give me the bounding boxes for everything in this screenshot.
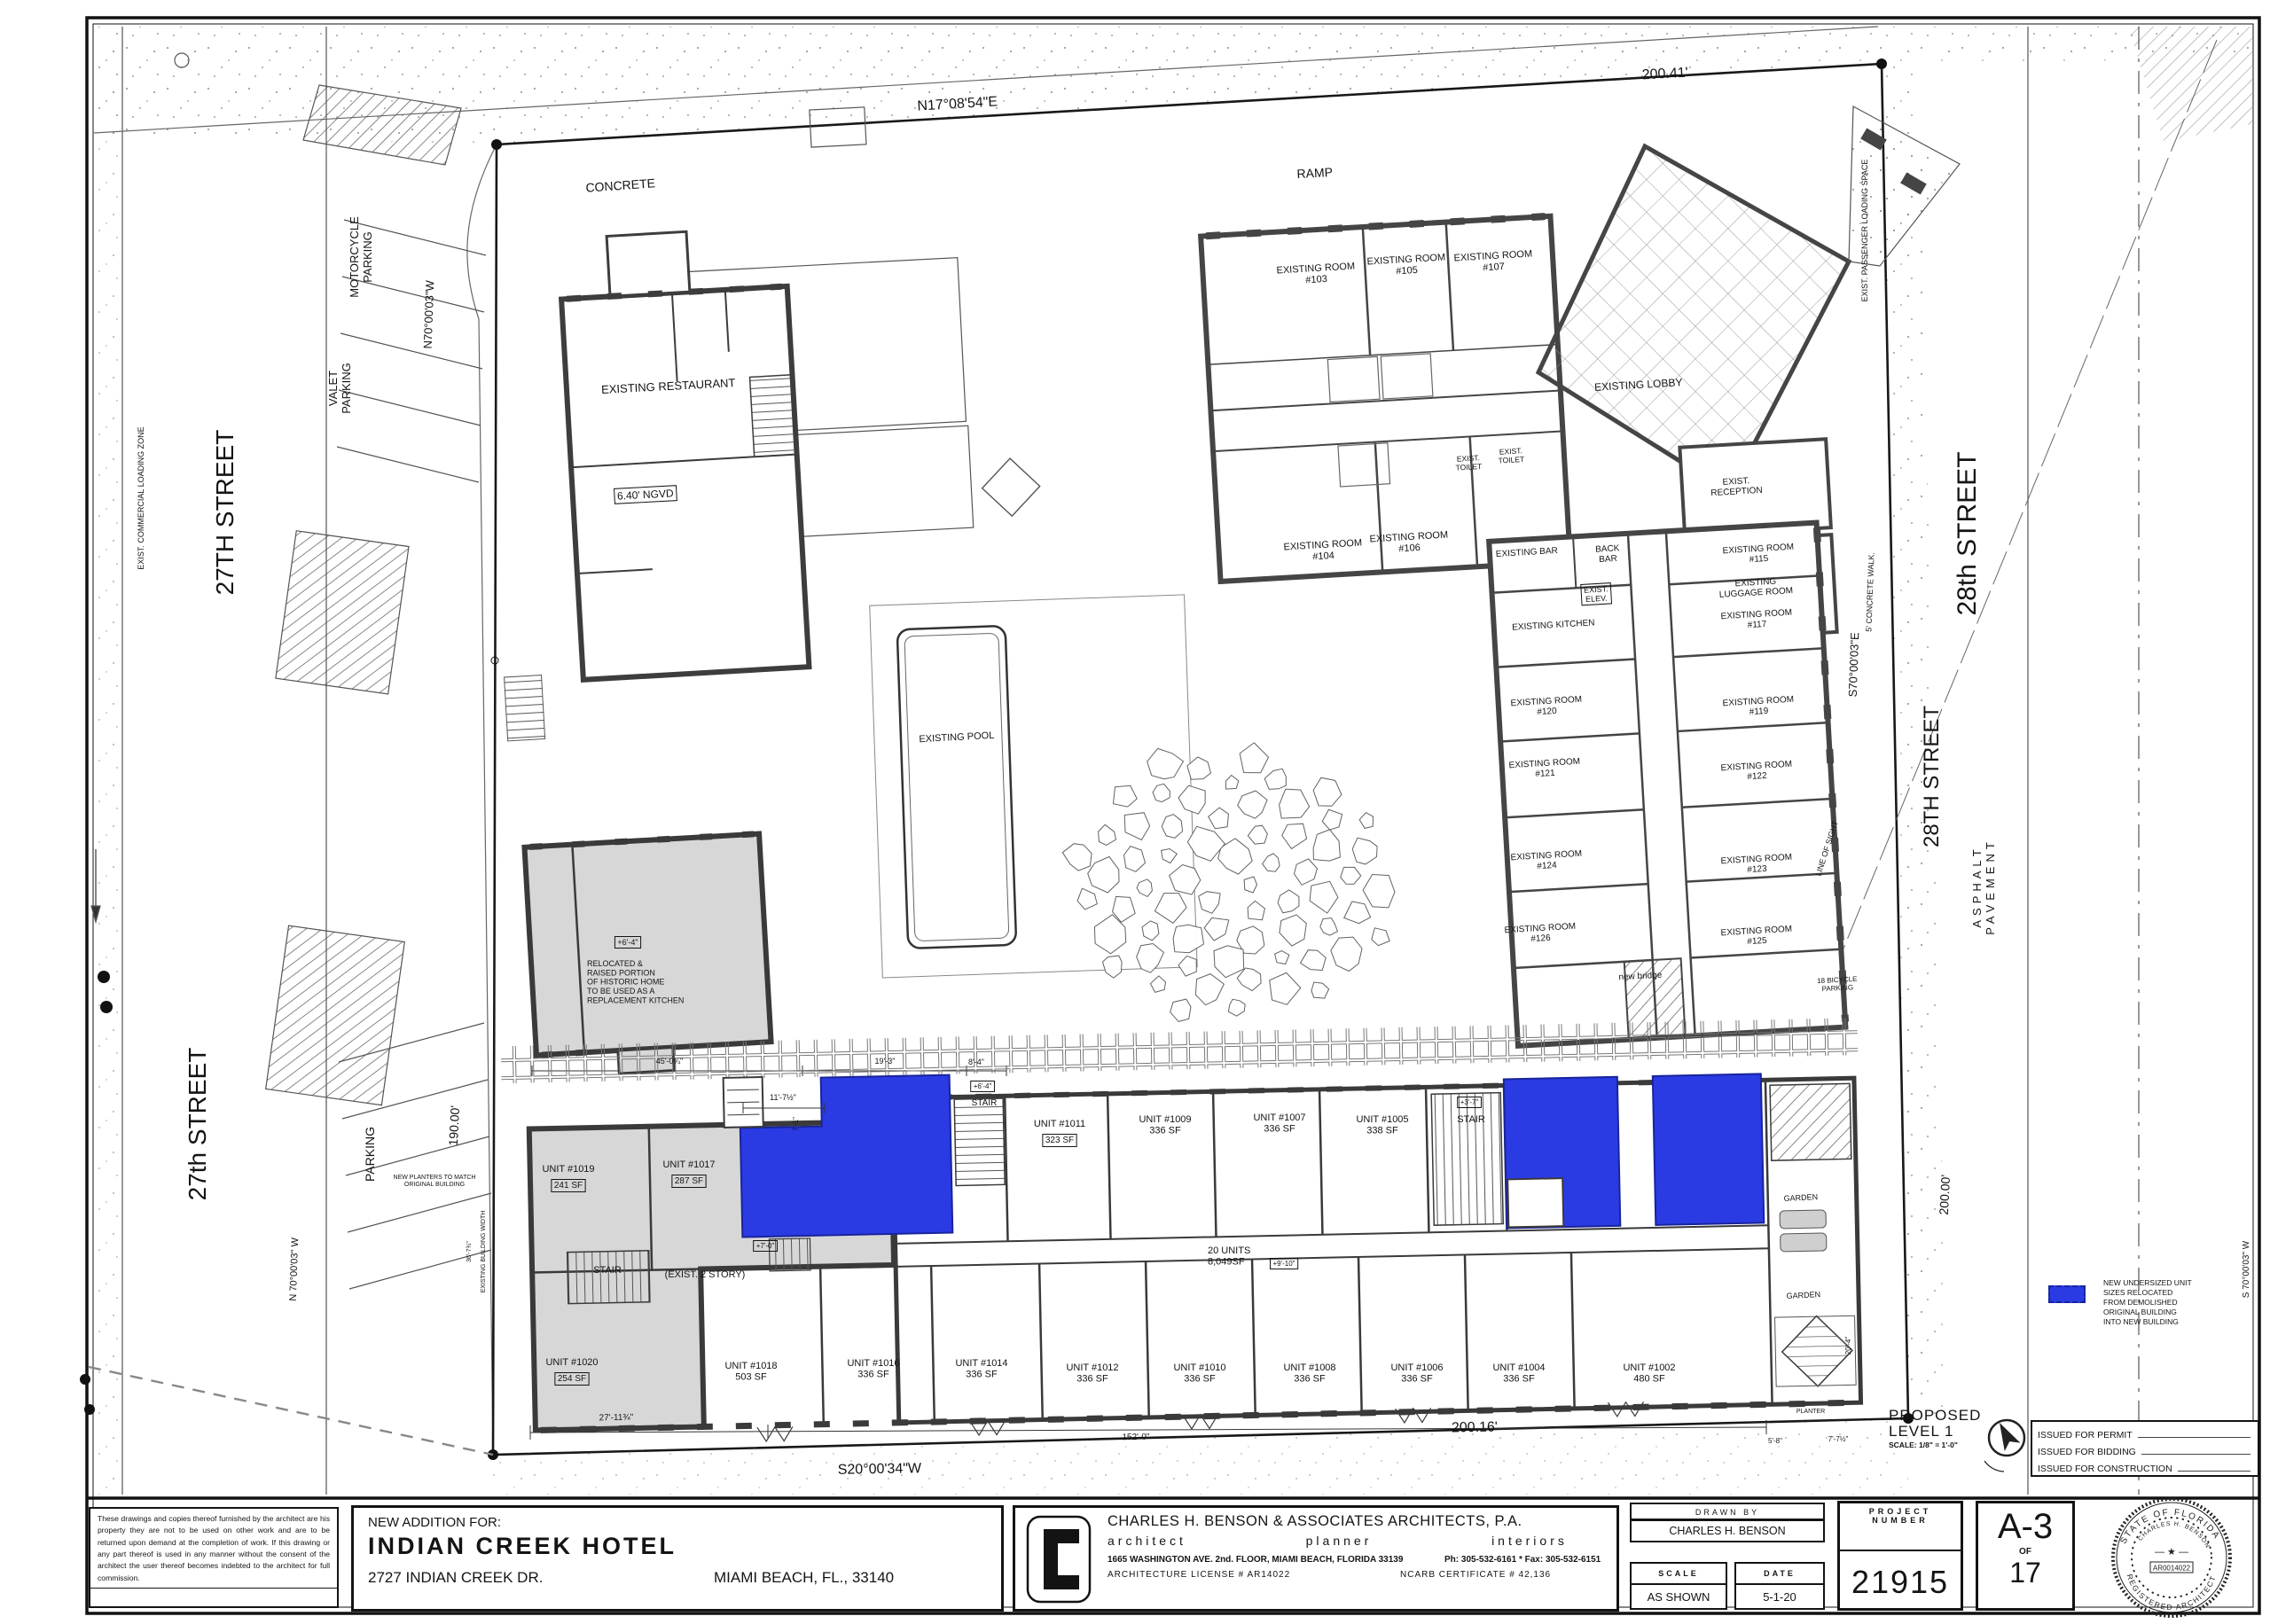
plan-label: 5' CONCRETE WALK. xyxy=(1864,552,1875,632)
plan-label: 200.16' xyxy=(1452,1420,1498,1436)
drawn-by-value: CHARLES H. BENSON xyxy=(1632,1521,1823,1542)
plan-label: 20 UNITS8,049SF xyxy=(1208,1245,1250,1268)
tree-leaf xyxy=(1228,999,1245,1016)
tree-leaf xyxy=(1264,769,1286,789)
issued-row: ISSUED FOR BIDDING xyxy=(2032,1441,2258,1457)
drawn-by-label: DRAWN BY xyxy=(1632,1504,1823,1520)
tree-leaf xyxy=(1204,917,1229,941)
plan-label: +7'-0" xyxy=(756,1242,775,1250)
tree-leaf xyxy=(1209,808,1229,829)
scale-label: SCALE xyxy=(1632,1564,1726,1585)
tree-leaf xyxy=(1153,784,1170,801)
tree-leaf xyxy=(1248,825,1267,844)
scale-value: AS SHOWN xyxy=(1632,1585,1726,1610)
architect-box: CHARLES H. BENSON & ASSOCIATES ARCHITECT… xyxy=(1013,1505,1619,1612)
plan-label: +6'-4" xyxy=(617,938,638,947)
tree-leaf xyxy=(1270,972,1301,1004)
plan-label: +6'-4" xyxy=(974,1082,992,1090)
tree xyxy=(1062,743,1395,1022)
project-for: NEW ADDITION FOR: xyxy=(368,1515,987,1530)
plan-label: EXIST.ELEV. xyxy=(1584,584,1609,604)
hotel-north-block xyxy=(1201,216,1570,582)
plan-label: 8'-4" xyxy=(968,1058,984,1066)
existing-restaurant xyxy=(479,217,812,741)
tree-leaf xyxy=(1311,982,1329,998)
parking-stalls xyxy=(337,220,491,1289)
plan-label: 254 SF xyxy=(558,1374,586,1384)
plan-label: UNIT #1020 xyxy=(545,1357,598,1368)
date-value: 5-1-20 xyxy=(1736,1585,1823,1610)
plan-label: S70°00'03"E xyxy=(1846,632,1862,698)
plan-label: 28th STREET xyxy=(1953,451,1982,615)
plan-label: STAIR xyxy=(972,1098,998,1108)
issued-construction: ISSUED FOR CONSTRUCTION xyxy=(2038,1464,2172,1474)
plan-label: +9'-10" xyxy=(1272,1260,1295,1268)
sheet-total: 17 xyxy=(1978,1557,2072,1589)
firm-address: 1665 WASHINGTON AVE. 2nd. FLOOR, MIAMI B… xyxy=(1108,1555,1444,1565)
plan-label: 27th STREET xyxy=(184,1048,211,1201)
sheet-number-box: A-3 OF 17 xyxy=(1976,1501,2075,1611)
plan-label: 323 SF xyxy=(1045,1136,1074,1145)
tree-leaf xyxy=(1280,789,1310,818)
plan-label: EXIST.TOILET xyxy=(1498,446,1525,465)
tree-leaf xyxy=(1331,937,1362,971)
proposed-scale: SCALE: 1/8" = 1'-0" xyxy=(1889,1441,2022,1449)
drawn-by-header: DRAWN BY xyxy=(1630,1503,1825,1520)
tree-leaf xyxy=(1244,877,1256,893)
plan-label: UNIT #1017 xyxy=(662,1159,715,1170)
tree-leaf xyxy=(1237,968,1261,991)
plan-label: UNIT #1016336 SF xyxy=(847,1358,899,1380)
plan-label: 27TH STREET xyxy=(211,430,239,596)
plan-label: 27'-11¾" xyxy=(599,1413,634,1424)
tree-leaf xyxy=(1099,824,1116,845)
plan-label: 18 BICYCLEPARKING xyxy=(1817,975,1858,994)
disclaimer-text: These drawings and copies thereof furnis… xyxy=(90,1509,337,1584)
plan-label: 45'-0¾" xyxy=(656,1057,683,1066)
plan-label: ASPHALTPAVEMENT xyxy=(1970,838,1997,935)
tree-leaf xyxy=(1103,956,1123,978)
tree-leaf xyxy=(1310,881,1338,913)
tree-leaf xyxy=(1295,859,1318,885)
tree-leaf xyxy=(1137,879,1152,897)
firm-role-architect: architect xyxy=(1108,1534,1186,1548)
project-name: INDIAN CREEK HOTEL xyxy=(368,1533,987,1560)
seal-reg-number: AR0014022 xyxy=(2153,1565,2191,1573)
disclaimer-box: These drawings and copies thereof furnis… xyxy=(89,1507,339,1608)
plan-label: CONCRETE xyxy=(585,176,655,194)
architect-seal: STATE OF FLORIDA CHARLES H. BENSON — ★ —… xyxy=(2103,1491,2240,1624)
tree-leaf xyxy=(1313,777,1342,806)
plan-label: 241 SF xyxy=(554,1181,583,1191)
tree-leaf xyxy=(1372,928,1389,946)
scale-box: SCALE AS SHOWN xyxy=(1630,1562,1727,1610)
tree-leaf xyxy=(1142,921,1159,941)
plan-label: UNIT #1011 xyxy=(1034,1119,1085,1129)
plan-label: GARDEN xyxy=(1786,1290,1820,1300)
drawing-sheet: { "sheet": { "drawing_title": {"line1":"… xyxy=(0,0,2270,1621)
plan-label: 19'-3" xyxy=(875,1057,896,1066)
plan-label: GARDEN xyxy=(1783,1192,1818,1203)
legend-text: NEW UNDERSIZED UNIT SIZES RELOCATED FROM… xyxy=(2103,1278,2254,1327)
tree-leaf xyxy=(1320,918,1338,936)
tree-leaf xyxy=(1114,785,1138,807)
date-box: DATE 5-1-20 xyxy=(1734,1562,1825,1610)
tree-leaf xyxy=(1088,856,1119,893)
tree-leaf xyxy=(1147,748,1184,778)
tree-leaf xyxy=(1150,976,1165,993)
plan-label: RAMP xyxy=(1296,165,1333,181)
tree-leaf xyxy=(1238,791,1267,818)
project-number-box: PROJECT NUMBER 21915 xyxy=(1837,1501,1963,1611)
tree-leaf xyxy=(1322,809,1342,830)
plan-label: 36'-7¾" xyxy=(466,1241,473,1262)
plan-label: PLANTER xyxy=(1796,1409,1825,1415)
tree-leaf xyxy=(1162,849,1178,863)
plan-label: 28TH STREET xyxy=(1920,706,1944,847)
hotel-east-wing xyxy=(1489,523,1845,1046)
plan-label: 152'-0" xyxy=(1122,1433,1150,1443)
plan-label: MOTORCYCLEPARKING xyxy=(348,216,374,298)
drawing-title-block: PROPOSED LEVEL 1 SCALE: 1/8" = 1'-0" xyxy=(1889,1408,2022,1449)
sheet-of: OF xyxy=(1978,1547,2072,1557)
date-label: DATE xyxy=(1736,1564,1823,1585)
firm-license: ARCHITECTURE LICENSE # AR14022 xyxy=(1108,1570,1400,1580)
tree-leaf xyxy=(1199,892,1221,914)
firm-ncarb: NCARB CERTIFICATE # 42,136 xyxy=(1400,1570,1551,1580)
firm-role-interiors: interiors xyxy=(1491,1534,1568,1548)
tree-leaf xyxy=(1173,925,1203,952)
tree-leaf xyxy=(1077,888,1097,910)
issued-box: ISSUED FOR PERMIT ISSUED FOR BIDDING ISS… xyxy=(2031,1420,2259,1477)
tree-leaf xyxy=(1313,830,1340,861)
tree-leaf xyxy=(1170,865,1201,895)
plan-label: 5'-8" xyxy=(1768,1437,1782,1445)
tree-leaf xyxy=(1062,844,1092,871)
project-address: 2727 INDIAN CREEK DR. xyxy=(368,1569,714,1587)
firm-name: CHARLES H. BENSON & ASSOCIATES ARCHITECT… xyxy=(1108,1513,1608,1530)
tree-leaf xyxy=(1280,915,1306,946)
existing-pool xyxy=(865,452,1197,978)
plan-label: NEW PLANTERS TO MATCHORIGINAL BUILDING xyxy=(394,1175,476,1188)
tree-leaf xyxy=(1278,890,1299,913)
plan-label: 287 SF xyxy=(675,1176,703,1186)
plan-label: UNIT #1019 xyxy=(542,1164,594,1175)
plan-label: 190.00' xyxy=(446,1105,462,1146)
tree-leaf xyxy=(1263,854,1280,871)
tree-leaf xyxy=(1341,867,1361,884)
project-city: MIAMI BEACH, FL., 33140 xyxy=(714,1569,894,1587)
tree-leaf xyxy=(1275,951,1289,964)
plan-label: PARKING xyxy=(363,1127,377,1182)
plan-label: STAIR xyxy=(1457,1114,1485,1125)
new-building xyxy=(528,1054,1861,1446)
tree-leaf xyxy=(1170,999,1191,1021)
plan-label: N 70°00'03" W xyxy=(288,1237,301,1301)
tree-leaf xyxy=(1344,902,1371,924)
tree-leaf xyxy=(1301,950,1327,971)
tree-leaf xyxy=(1214,946,1244,978)
firm-phone: Ph: 305-532-6161 * Fax: 305-532-6151 xyxy=(1444,1555,1601,1565)
legend-swatch xyxy=(2048,1285,2086,1303)
tree-leaf xyxy=(1195,974,1224,1005)
plan-label: STAIR xyxy=(593,1265,622,1276)
tree-leaf xyxy=(1124,813,1149,840)
seal-star: — ★ — xyxy=(2155,1547,2188,1558)
plan-label: (EXIST. 2 STORY) xyxy=(665,1269,746,1280)
site-plan-drawing: CONCRETERAMP200.41'N17°08'54"EMOTORCYCLE… xyxy=(0,0,2270,1621)
project-number-label: PROJECT NUMBER xyxy=(1840,1503,1961,1525)
tree-leaf xyxy=(1124,847,1146,872)
plan-label: BACKBAR xyxy=(1595,543,1621,565)
plan-label: 20'-4" xyxy=(1844,1337,1852,1355)
issued-bidding: ISSUED FOR BIDDING xyxy=(2038,1447,2136,1457)
tree-leaf xyxy=(1363,875,1395,908)
plan-label: EXIST. COMMERCIAL LOADING ZONE xyxy=(137,426,145,569)
firm-logo-icon xyxy=(1024,1513,1100,1604)
tree-leaf xyxy=(1240,743,1268,773)
drawn-by-value-box: CHARLES H. BENSON xyxy=(1630,1519,1825,1542)
tree-leaf xyxy=(1352,838,1377,864)
tree-leaf xyxy=(1178,956,1196,976)
issued-row: ISSUED FOR CONSTRUCTION xyxy=(2032,1457,2258,1474)
project-number-value: 21915 xyxy=(1840,1564,1961,1601)
plan-label: EXIST.TOILET xyxy=(1455,453,1483,472)
plan-label: VALETPARKING xyxy=(326,363,353,414)
tree-leaf xyxy=(1178,785,1205,814)
tree-leaf xyxy=(1225,776,1239,790)
relocated-unit-area-3 xyxy=(1653,1074,1764,1225)
plan-label: 7'-7½" xyxy=(1828,1435,1849,1443)
firm-role-planner: planner xyxy=(1306,1534,1373,1548)
sheet-number: A-3 xyxy=(1978,1507,2072,1547)
plan-label: N70°00'03"W xyxy=(421,279,437,349)
plan-label: UNIT #1018503 SF xyxy=(724,1361,777,1383)
tree-leaf xyxy=(1162,815,1182,839)
plan-label: 7'-1" xyxy=(792,1117,800,1131)
issued-row: ISSUED FOR PERMIT xyxy=(2032,1424,2258,1441)
proposed-line2: LEVEL 1 xyxy=(1889,1424,2022,1440)
plan-label: S20°00'34"W xyxy=(838,1461,922,1478)
tree-leaf xyxy=(1248,901,1264,919)
plan-label: EXISTING BUILDING WIDTH xyxy=(481,1211,487,1293)
plan-label: 200.00' xyxy=(1937,1175,1953,1215)
issued-permit: ISSUED FOR PERMIT xyxy=(2038,1430,2133,1441)
plan-label: 200.41' xyxy=(1641,66,1688,83)
tree-leaf xyxy=(1359,813,1373,829)
proposed-line1: PROPOSED xyxy=(1889,1408,2022,1424)
tree-leaf xyxy=(1282,824,1307,848)
tree-leaf xyxy=(1155,894,1186,924)
plan-label: 11'-7½" xyxy=(770,1093,796,1102)
plan-label: +3'-7" xyxy=(1460,1098,1479,1106)
plan-label: EXIST. PASSENGER LOADING SPACE xyxy=(1860,160,1869,302)
tree-leaf xyxy=(1187,757,1211,779)
project-title-box: NEW ADDITION FOR: INDIAN CREEK HOTEL 272… xyxy=(351,1505,1004,1612)
